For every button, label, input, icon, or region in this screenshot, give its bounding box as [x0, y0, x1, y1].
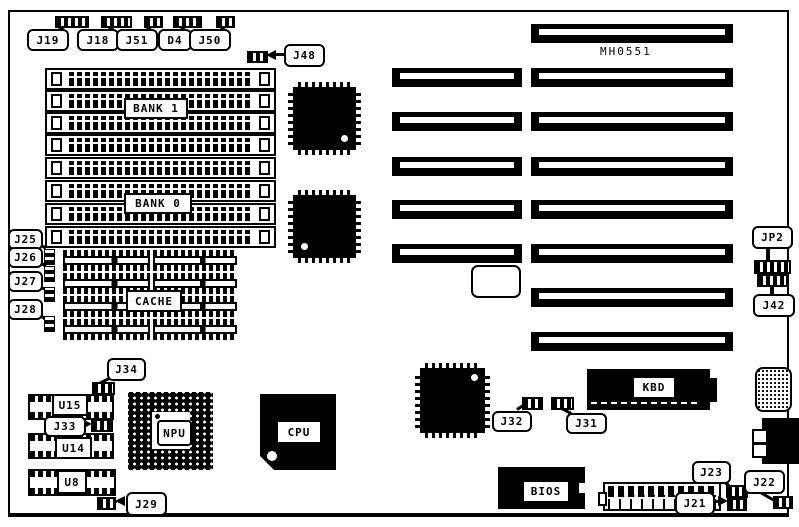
chip-pins — [63, 265, 150, 271]
simm-clip — [51, 230, 62, 244]
oscillator-outline — [471, 265, 521, 298]
simm-clip — [259, 184, 270, 198]
simm-clip — [259, 116, 270, 130]
isa-slot-long — [531, 332, 733, 351]
simm-clip — [51, 138, 62, 152]
jumper-header-icon-j31 — [551, 397, 574, 410]
chip-pins — [298, 258, 351, 263]
chip-pins — [425, 363, 480, 368]
simm-clip — [259, 207, 270, 221]
callout-j28: J28 — [8, 299, 43, 320]
isa-slot-ext — [392, 157, 522, 176]
bank0-label: BANK 0 — [124, 193, 192, 214]
isa-slot-long — [531, 288, 733, 307]
pin1-dot — [301, 243, 308, 250]
simm-clip — [259, 161, 270, 175]
bank1-label: BANK 1 — [124, 98, 188, 119]
callout-jp2: JP2 — [752, 226, 793, 249]
chip-pins — [485, 373, 490, 428]
connector-tab — [752, 429, 768, 444]
callout-j27: J27 — [8, 271, 43, 292]
cache-label: CACHE — [126, 290, 182, 312]
isa-slot-ext — [392, 112, 522, 131]
chip-pins — [591, 402, 700, 404]
connector-tab — [598, 492, 607, 506]
chip-pins — [288, 92, 293, 145]
chip-pins — [356, 92, 361, 145]
callout-j50: J50 — [189, 29, 231, 51]
simm-clip — [259, 230, 270, 244]
jumper-header-icon-j32 — [522, 397, 543, 410]
callout-j22: J22 — [744, 470, 785, 494]
cache-chip — [153, 319, 237, 340]
simm-socket — [45, 157, 276, 179]
jumper-header-icon-j22 — [773, 496, 793, 509]
isa-slot-long — [531, 157, 733, 176]
callout-j32: J32 — [492, 411, 532, 432]
chip-pins — [63, 334, 150, 340]
simm-clip — [51, 207, 62, 221]
chip-pins — [356, 200, 361, 253]
pin1-dot — [267, 451, 277, 461]
slot-opening — [539, 249, 725, 255]
slot-opening — [400, 73, 514, 79]
jumper-header-icon-j42 — [757, 274, 788, 287]
jumper-header-icon-j26 — [44, 266, 55, 282]
slot-opening — [539, 293, 725, 299]
slot-opening — [400, 205, 514, 211]
bios-label: BIOS — [523, 481, 569, 502]
jumper-header-icon-j51 — [144, 16, 163, 28]
cache-chip — [63, 250, 150, 271]
isa-slot-long — [531, 244, 733, 263]
chip-body — [153, 279, 237, 288]
jumper-header-icon-j29 — [97, 497, 116, 510]
jumper-header-icon-j21 — [727, 498, 747, 511]
callout-j18: J18 — [77, 29, 119, 51]
callout-pointer — [115, 496, 125, 506]
slot-opening — [539, 73, 725, 79]
chip-body — [153, 256, 237, 265]
board-part-number: MH0551 — [600, 45, 652, 58]
u14-label: U14 — [55, 437, 92, 459]
callout-j42: J42 — [753, 294, 795, 317]
u15-label: U15 — [52, 394, 88, 416]
jumper-header-icon-j28 — [44, 316, 55, 332]
isa-slot-long — [531, 68, 733, 87]
jumper-header-icon-j19 — [55, 16, 89, 28]
callout-j29: J29 — [126, 492, 167, 516]
chip-pins — [415, 373, 420, 428]
simm-pins — [69, 72, 252, 86]
connector-tab — [752, 443, 768, 458]
chip-body — [153, 325, 237, 334]
simm-clip — [51, 72, 62, 86]
chip-pins — [425, 433, 480, 438]
simm-socket — [45, 226, 276, 248]
pin1-dot — [341, 135, 348, 142]
jumper-header-icon-j50 — [216, 16, 235, 28]
slot-opening — [400, 117, 514, 123]
chip-pins — [288, 200, 293, 253]
isa-slot-long — [531, 24, 733, 43]
slot-opening — [539, 117, 725, 123]
callout-j31: J31 — [566, 413, 607, 434]
callout-j23: J23 — [692, 461, 731, 484]
simm-clip — [51, 184, 62, 198]
isa-slot-ext — [392, 244, 522, 263]
simm-clip — [51, 161, 62, 175]
chip-pins — [153, 265, 237, 271]
qfp-chip — [420, 368, 485, 433]
chip-pins — [298, 190, 351, 195]
u8-label: U8 — [57, 470, 87, 494]
kbd-label: KBD — [633, 377, 675, 398]
simm-pins — [69, 161, 252, 175]
simm-pins — [69, 138, 252, 152]
callout-j51: J51 — [116, 29, 158, 51]
pin1-dot — [155, 414, 160, 419]
bios-chip-notch — [579, 483, 587, 493]
simm-socket — [45, 134, 276, 156]
callout-d4: D4 — [158, 29, 192, 51]
callout-j19: J19 — [27, 29, 69, 51]
simm-clip — [259, 72, 270, 86]
isa-slot-ext — [392, 200, 522, 219]
slot-opening — [400, 162, 514, 168]
jumper-header-icon-j48 — [247, 51, 268, 63]
jumper-header-icon-jp2 — [754, 260, 791, 274]
slot-opening — [539, 162, 725, 168]
simm-pins — [69, 230, 252, 244]
fuse-component — [755, 367, 792, 412]
chip-body — [63, 256, 150, 265]
callout-j48: J48 — [284, 44, 325, 67]
chip-pins — [153, 334, 237, 340]
kbd-chip-notch — [710, 378, 717, 402]
chip-body — [63, 279, 150, 288]
slot-opening — [539, 29, 725, 35]
qfp-chip — [293, 195, 356, 258]
cpu-label: CPU — [277, 421, 321, 443]
simm-clip — [51, 94, 62, 108]
jumper-header-icon-d4 — [173, 16, 202, 28]
slot-opening — [539, 337, 725, 343]
pin1-dot — [471, 374, 478, 381]
callout-j21: J21 — [675, 492, 715, 515]
chip-body — [63, 325, 150, 334]
slot-opening — [400, 249, 514, 255]
simm-clip — [259, 94, 270, 108]
jumper-header-icon-j18 — [101, 16, 132, 28]
simm-clip — [259, 138, 270, 152]
chip-pins — [298, 150, 351, 155]
callout-j34: J34 — [107, 358, 146, 381]
jumper-header-icon-j34 — [92, 382, 115, 395]
npu-label: NPU — [157, 420, 192, 446]
isa-slot-long — [531, 112, 733, 131]
simm-clip — [51, 116, 62, 130]
qfp-chip — [293, 87, 356, 150]
simm-socket — [45, 68, 276, 90]
chip-pins — [298, 82, 351, 87]
callout-j26: J26 — [8, 247, 43, 268]
slot-opening — [539, 205, 725, 211]
jumper-header-icon-j27 — [44, 287, 55, 302]
isa-slot-ext — [392, 68, 522, 87]
cache-chip — [153, 250, 237, 271]
cache-chip — [63, 319, 150, 340]
isa-slot-long — [531, 200, 733, 219]
callout-j33: J33 — [44, 416, 86, 437]
jumper-header-icon-j33 — [91, 419, 113, 432]
jumper-header-icon-j25 — [44, 249, 55, 265]
